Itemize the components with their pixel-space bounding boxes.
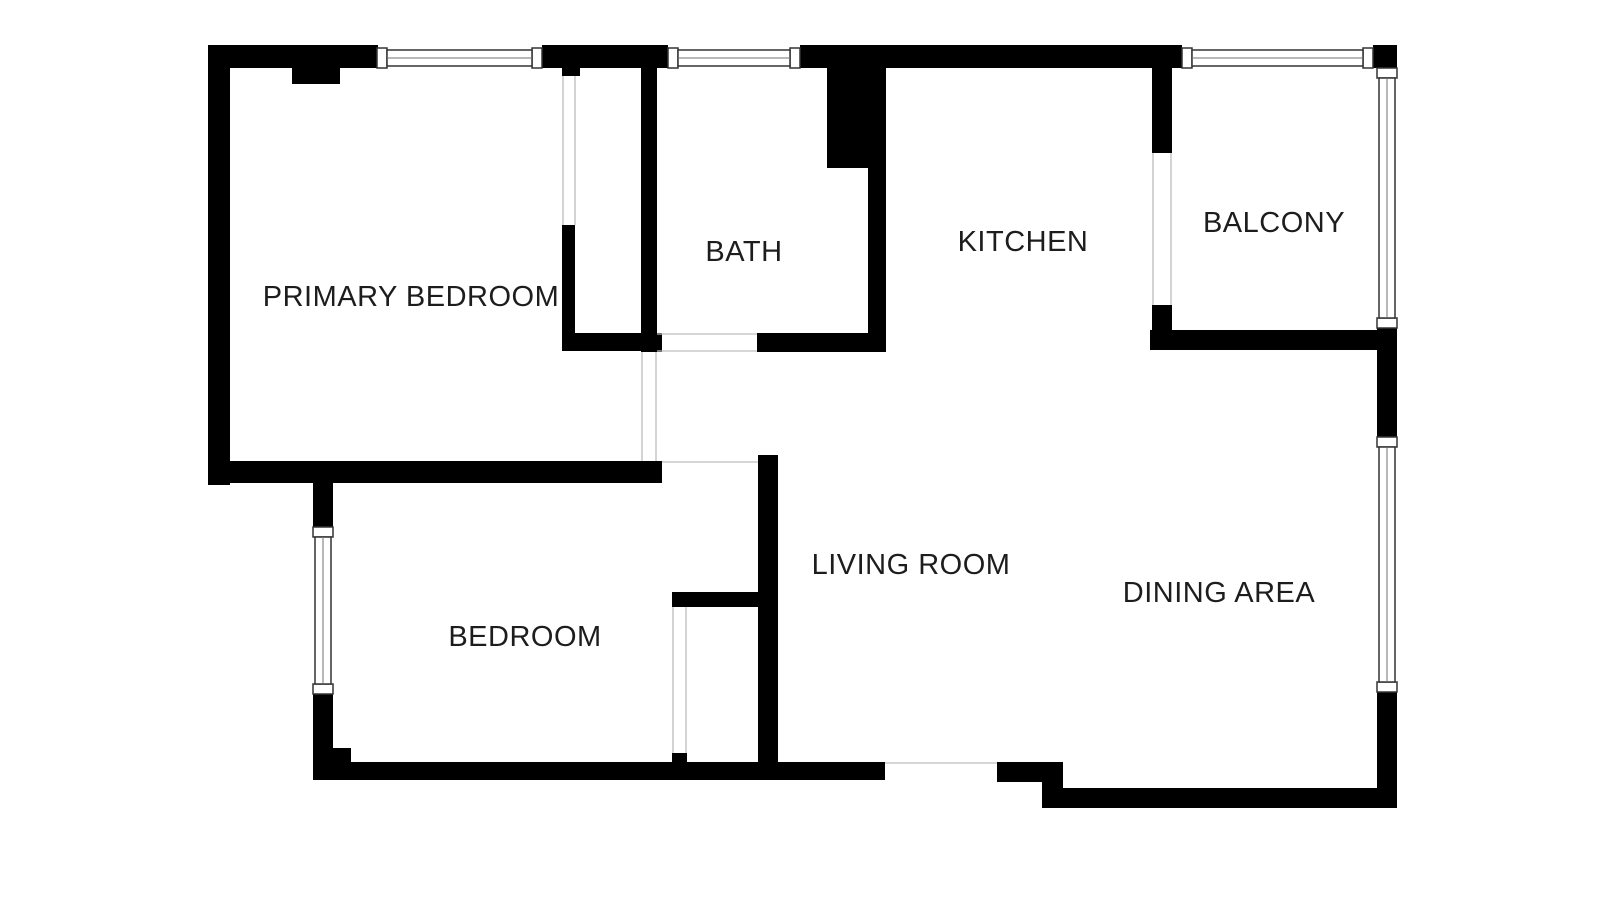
room-label-bath: BATH <box>705 236 782 268</box>
window-cap <box>313 527 333 537</box>
wall-segment <box>672 592 765 607</box>
wall-segment <box>827 45 886 168</box>
room-label-kitchen: KITCHEN <box>958 226 1089 258</box>
wall-segment <box>1152 67 1172 153</box>
window-cap <box>1377 68 1397 78</box>
wall-segment <box>562 225 575 351</box>
wall-segment <box>562 65 580 76</box>
wall-segment <box>1042 788 1397 808</box>
wall-segment <box>208 45 378 68</box>
wall-segment <box>313 461 333 527</box>
wall-segment <box>1373 45 1397 68</box>
wall-segment <box>292 67 340 84</box>
wall-segment <box>208 461 662 483</box>
window-cap <box>1377 682 1397 692</box>
window-cap <box>1182 48 1192 68</box>
room-label-balcony: BALCONY <box>1203 207 1345 239</box>
window <box>377 48 542 68</box>
window-cap <box>532 48 542 68</box>
wall-segment <box>333 748 351 762</box>
floorplan-page: PRIMARY BEDROOMBATHKITCHENBALCONYBEDROOM… <box>0 0 1600 900</box>
window-cap <box>377 48 387 68</box>
window-cap <box>1377 318 1397 328</box>
window-cap <box>1377 437 1397 447</box>
wall-segment <box>1377 692 1397 808</box>
wall-segment <box>208 45 230 485</box>
window <box>668 48 800 68</box>
room-label-dining-area: DINING AREA <box>1123 577 1316 609</box>
room-labels-layer: PRIMARY BEDROOMBATHKITCHENBALCONYBEDROOM… <box>263 207 1345 653</box>
window <box>1377 437 1397 692</box>
window-cap <box>1363 48 1373 68</box>
window-cap <box>313 684 333 694</box>
walls-layer <box>208 45 1397 808</box>
window <box>1182 48 1373 68</box>
wall-segment <box>1150 330 1397 350</box>
wall-segment <box>1152 305 1172 330</box>
wall-segment <box>758 455 778 780</box>
room-label-living-room: LIVING ROOM <box>812 549 1011 581</box>
wall-segment <box>868 168 886 352</box>
wall-segment <box>641 67 657 352</box>
floorplan-canvas: PRIMARY BEDROOMBATHKITCHENBALCONYBEDROOM… <box>0 0 1600 900</box>
window-cap <box>790 48 800 68</box>
window <box>313 527 333 694</box>
wall-segment <box>562 333 657 351</box>
window-cap <box>668 48 678 68</box>
wall-segment <box>757 333 886 352</box>
wall-segment <box>672 753 687 762</box>
wall-segment <box>542 45 668 68</box>
window <box>1377 68 1397 328</box>
room-label-bedroom: BEDROOM <box>448 621 601 653</box>
room-label-primary-bedroom: PRIMARY BEDROOM <box>263 281 559 313</box>
wall-segment <box>313 762 885 780</box>
